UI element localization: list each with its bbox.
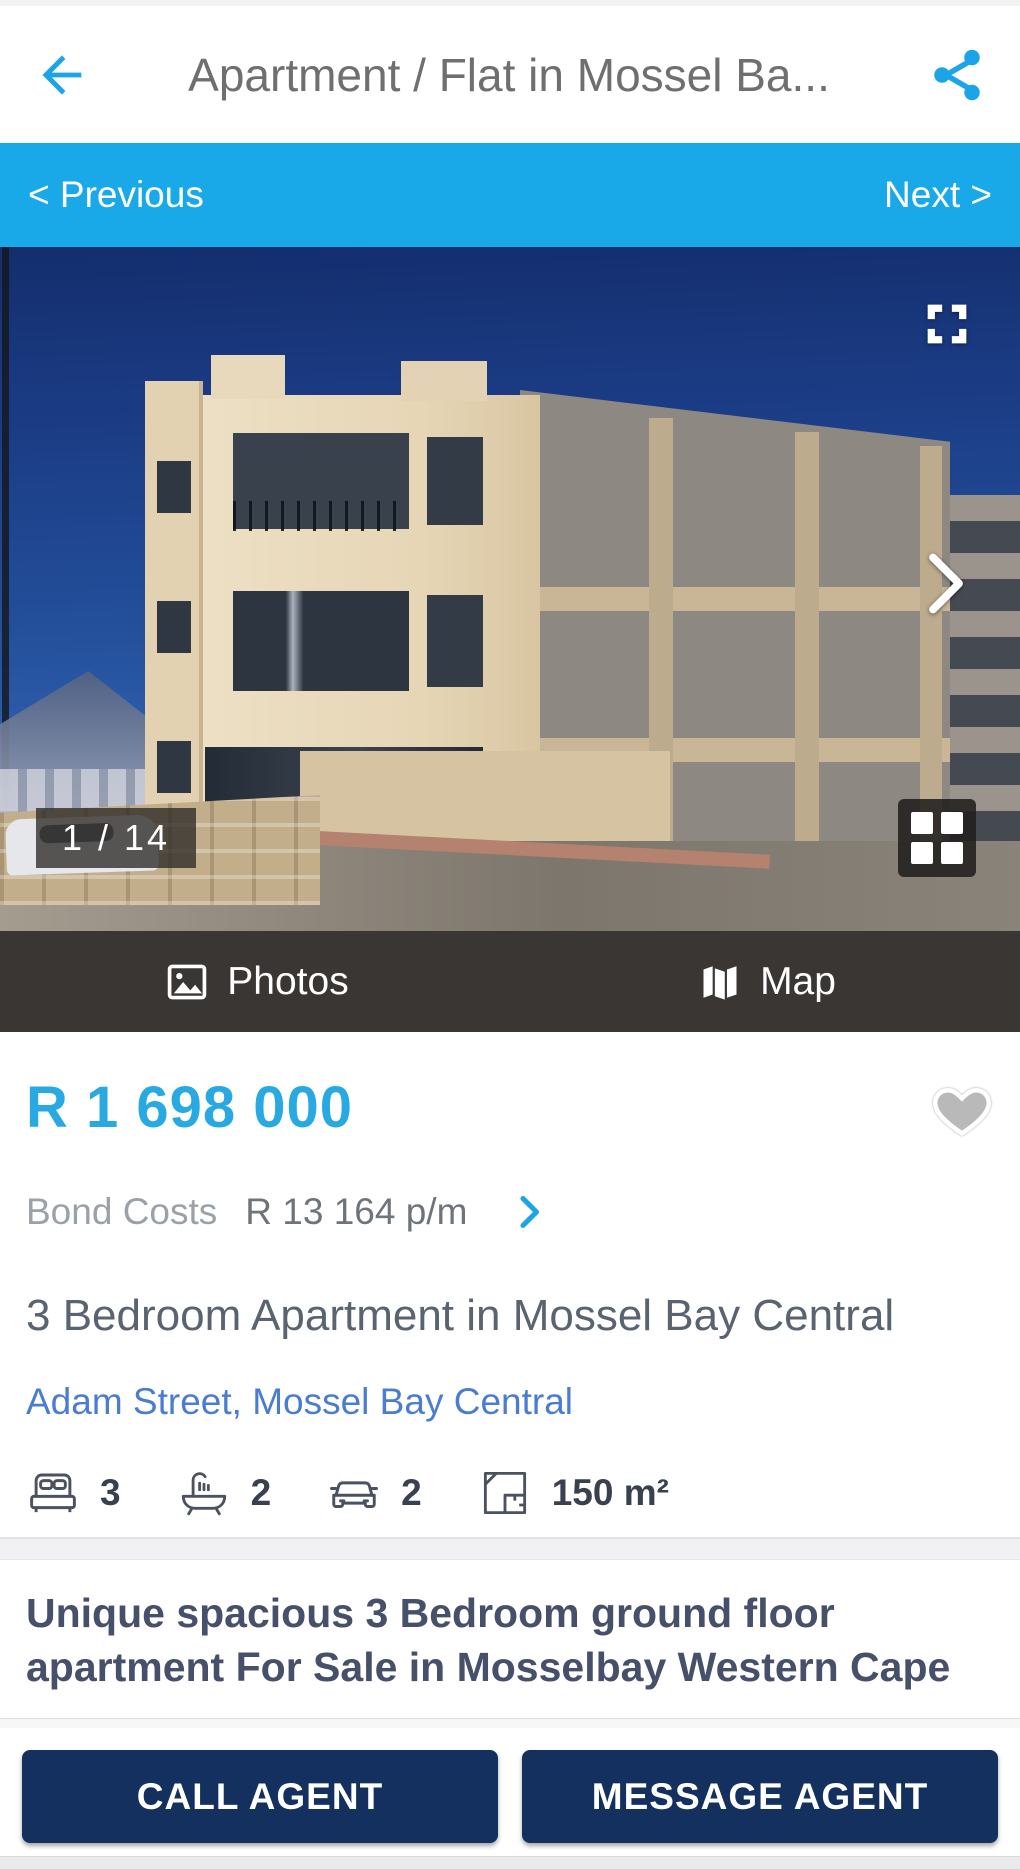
media-bar: Photos Map bbox=[0, 931, 1020, 1032]
listing-title: 3 Bedroom Apartment in Mossel Bay Centra… bbox=[26, 1291, 994, 1341]
spec-bedrooms: 3 bbox=[26, 1469, 121, 1517]
tab-photos-label: Photos bbox=[227, 960, 348, 1004]
photo-counter: 1 / 14 bbox=[36, 808, 196, 868]
previous-listing-button[interactable]: < Previous bbox=[28, 174, 204, 216]
fullscreen-icon[interactable] bbox=[918, 295, 976, 353]
bath-icon bbox=[177, 1469, 231, 1517]
specs-row: 3 2 bbox=[26, 1469, 994, 1517]
photos-icon bbox=[161, 960, 213, 1004]
page-title: Apartment / Flat in Mossel Ba... bbox=[94, 48, 924, 102]
message-agent-button[interactable]: MESSAGE AGENT bbox=[522, 1750, 998, 1843]
section-separator bbox=[0, 1537, 1020, 1560]
gallery-nav-bar: < Previous Next > bbox=[0, 143, 1020, 247]
bond-costs-row[interactable]: Bond Costs R 13 164 p/m bbox=[26, 1191, 994, 1233]
back-button[interactable] bbox=[30, 43, 94, 107]
header: Apartment / Flat in Mossel Ba... bbox=[0, 6, 1020, 143]
spec-parking: 2 bbox=[327, 1469, 422, 1517]
bathrooms-count: 2 bbox=[251, 1472, 272, 1514]
share-icon bbox=[927, 45, 987, 105]
heart-icon bbox=[930, 1074, 994, 1138]
back-arrow-icon bbox=[33, 46, 91, 104]
bond-costs-value: R 13 164 p/m bbox=[245, 1191, 467, 1233]
bed-icon bbox=[26, 1469, 80, 1517]
parking-count: 2 bbox=[401, 1472, 422, 1514]
price-row: R 1 698 000 bbox=[26, 1032, 994, 1141]
property-detail-screen: Apartment / Flat in Mossel Ba... < Previ… bbox=[0, 0, 1020, 1869]
map-icon bbox=[694, 960, 746, 1004]
description-card: Unique spacious 3 Bedroom ground floor a… bbox=[0, 1560, 1020, 1718]
floor-size-icon bbox=[478, 1469, 532, 1517]
next-listing-button[interactable]: Next > bbox=[884, 174, 992, 216]
call-agent-button[interactable]: CALL AGENT bbox=[22, 1750, 498, 1843]
chevron-right-icon[interactable] bbox=[511, 1192, 547, 1232]
next-photo-chevron-icon[interactable] bbox=[920, 551, 972, 619]
spec-size: 150 m² bbox=[478, 1469, 669, 1517]
agent-actions-bar: CALL AGENT MESSAGE AGENT bbox=[0, 1728, 1020, 1856]
spec-bathrooms: 2 bbox=[177, 1469, 272, 1517]
size-value: 150 m² bbox=[552, 1472, 669, 1514]
listing-details-card: R 1 698 000 Bond Costs R 13 164 p/m 3 Be… bbox=[0, 1032, 1020, 1537]
tab-map[interactable]: Map bbox=[510, 931, 1020, 1032]
tab-photos[interactable]: Photos bbox=[0, 931, 510, 1032]
section-separator-thin bbox=[0, 1718, 1020, 1728]
listing-photo[interactable]: 1 / 14 bbox=[0, 247, 1020, 931]
bond-costs-label: Bond Costs bbox=[26, 1191, 217, 1233]
bedrooms-count: 3 bbox=[100, 1472, 121, 1514]
listing-price: R 1 698 000 bbox=[26, 1074, 353, 1141]
thumbnail-grid-icon[interactable] bbox=[898, 799, 976, 877]
tab-map-label: Map bbox=[760, 960, 836, 1004]
share-button[interactable] bbox=[924, 42, 990, 108]
description-headline: Unique spacious 3 Bedroom ground floor a… bbox=[26, 1586, 994, 1694]
next-card-edge bbox=[0, 1856, 1020, 1869]
listing-address-link[interactable]: Adam Street, Mossel Bay Central bbox=[26, 1381, 994, 1423]
favourite-button[interactable] bbox=[930, 1074, 994, 1138]
car-icon bbox=[327, 1469, 381, 1517]
